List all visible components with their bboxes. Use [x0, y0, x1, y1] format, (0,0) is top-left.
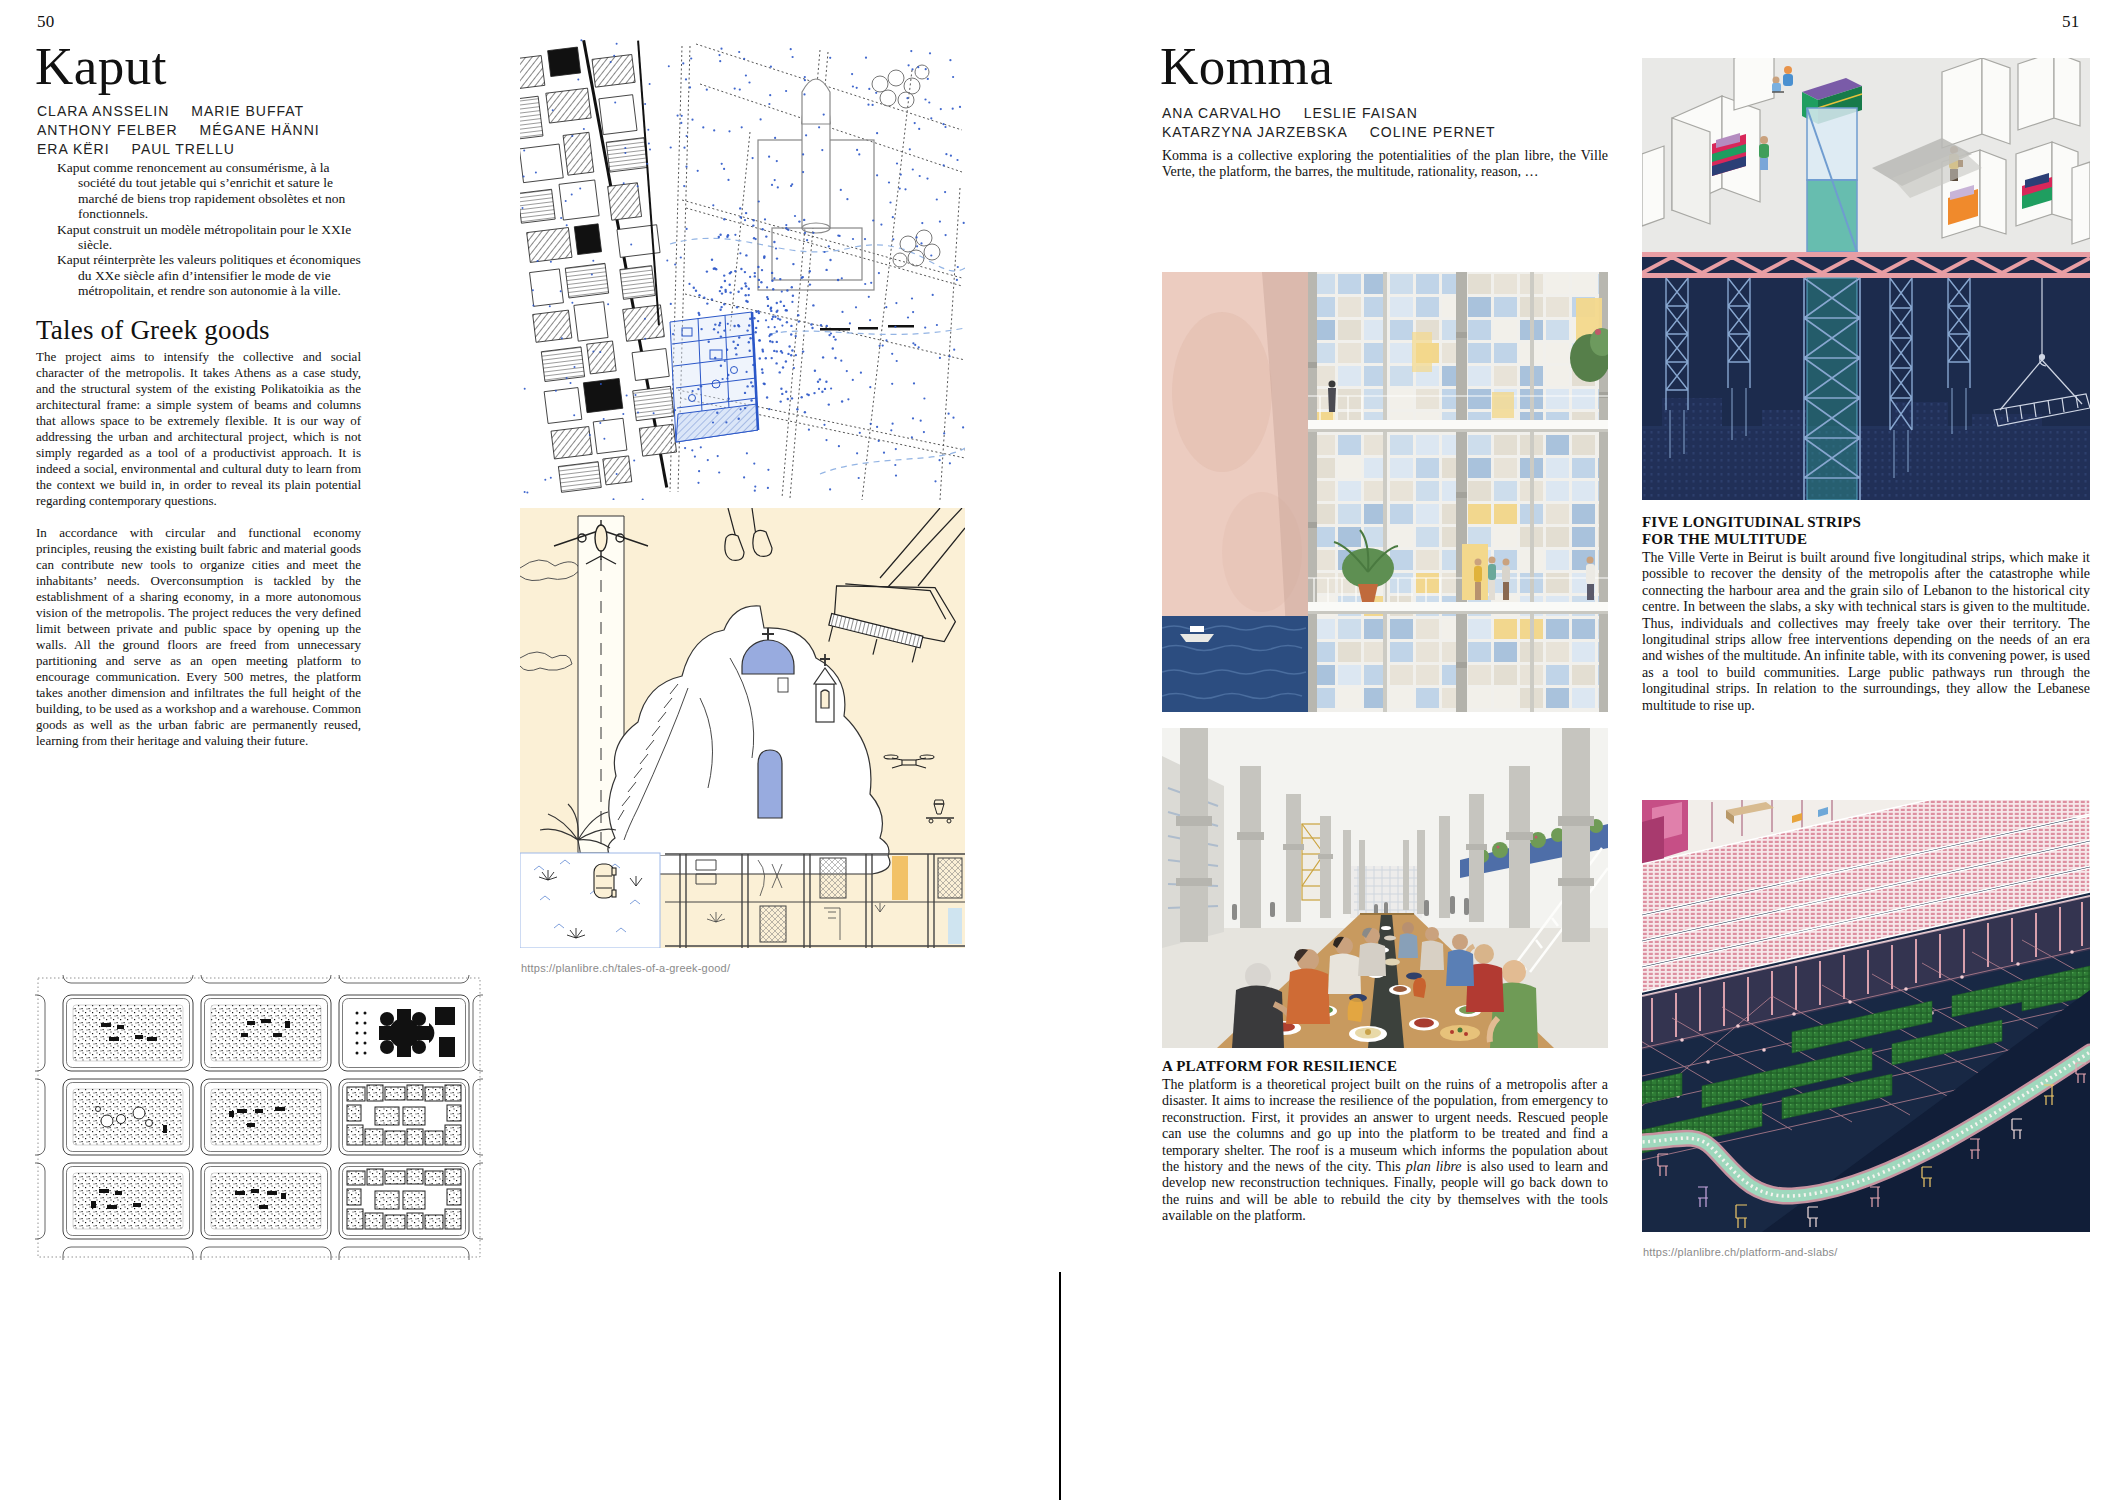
author-list-komma: ANA CARVALHOLESLIE FAISAN KATARZYNA JARZ…	[1162, 104, 1496, 142]
spine-fold-mark	[1059, 1272, 1061, 1500]
platform-body: The platform is a theoretical project bu…	[1162, 1077, 1608, 1225]
water-pool	[520, 853, 660, 948]
facade-collage-figure	[1162, 272, 1608, 712]
author-line: ERA KËRIPAUL TRELLU	[37, 140, 320, 159]
page-number-left: 50	[37, 12, 55, 32]
floor-plans-figure	[35, 975, 483, 1260]
page-number-right: 51	[2062, 12, 2080, 32]
manifesto-item: Kaput construit un modèle métropolitain …	[57, 222, 369, 253]
figure-url-right: https://planlibre.ch/platform-and-slabs/	[1643, 1246, 1837, 1258]
book-spread: 50 Kaput CLARA ANSSELINMARIE BUFFAT ANTH…	[0, 0, 2121, 1500]
car-icon	[594, 864, 616, 898]
author-list-kaput: CLARA ANSSELINMARIE BUFFAT ANTHONY FELBE…	[37, 102, 320, 159]
author-line: KATARZYNA JARZEBSKACOLINE PERNET	[1162, 123, 1496, 142]
paragraph: In accordance with circular and function…	[36, 525, 361, 749]
pink-truss	[1642, 252, 2090, 278]
city-blocks	[63, 995, 469, 1239]
athens-map-figure	[520, 32, 965, 500]
project-title-kaput: Kaput	[35, 40, 167, 93]
section-heading-tales: Tales of Greek goods	[36, 316, 270, 344]
author-line: CLARA ANSSELINMARIE BUFFAT	[37, 102, 320, 121]
plan-libre-italic: plan libre	[1406, 1159, 1462, 1174]
infinite-table-photo	[1162, 728, 1608, 1048]
strips-heading: FIVE LONGITUDINAL STRIPS FOR THE MULTITU…	[1642, 514, 2090, 548]
figure-url-left: https://planlibre.ch/tales-of-a-greek-go…	[521, 962, 730, 974]
ville-verte-isometric	[1642, 800, 2090, 1232]
strips-section: FIVE LONGITUDINAL STRIPS FOR THE MULTITU…	[1642, 514, 2090, 714]
komma-intro: Komma is a collective exploring the pote…	[1162, 148, 1608, 181]
paragraph: The project aims to intensify the collec…	[36, 349, 361, 509]
strips-body: The Ville Verte in Beirut is built aroun…	[1642, 550, 2090, 714]
platform-section: A PLATFORM FOR RESILIENCE The platform i…	[1162, 1058, 1608, 1225]
project-title-komma: Komma	[1160, 40, 1333, 93]
sea	[1162, 616, 1308, 712]
manifesto-block: Kaput comme renoncement au consumérisme,…	[57, 160, 369, 299]
author-line: ANTHONY FELBERMÉGANE HÄNNI	[37, 121, 320, 140]
multitude-slabs-illustration	[1642, 58, 2090, 500]
manifesto-item: Kaput comme renoncement au consumérisme,…	[57, 160, 369, 222]
platform-heading: A PLATFORM FOR RESILIENCE	[1162, 1058, 1608, 1075]
manifesto-item: Kaput réinterprète les valeurs politique…	[57, 252, 369, 298]
greek-goods-illustration	[520, 508, 965, 948]
kaput-body-text: The project aims to intensify the collec…	[36, 349, 361, 765]
author-line: ANA CARVALHOLESLIE FAISAN	[1162, 104, 1496, 123]
